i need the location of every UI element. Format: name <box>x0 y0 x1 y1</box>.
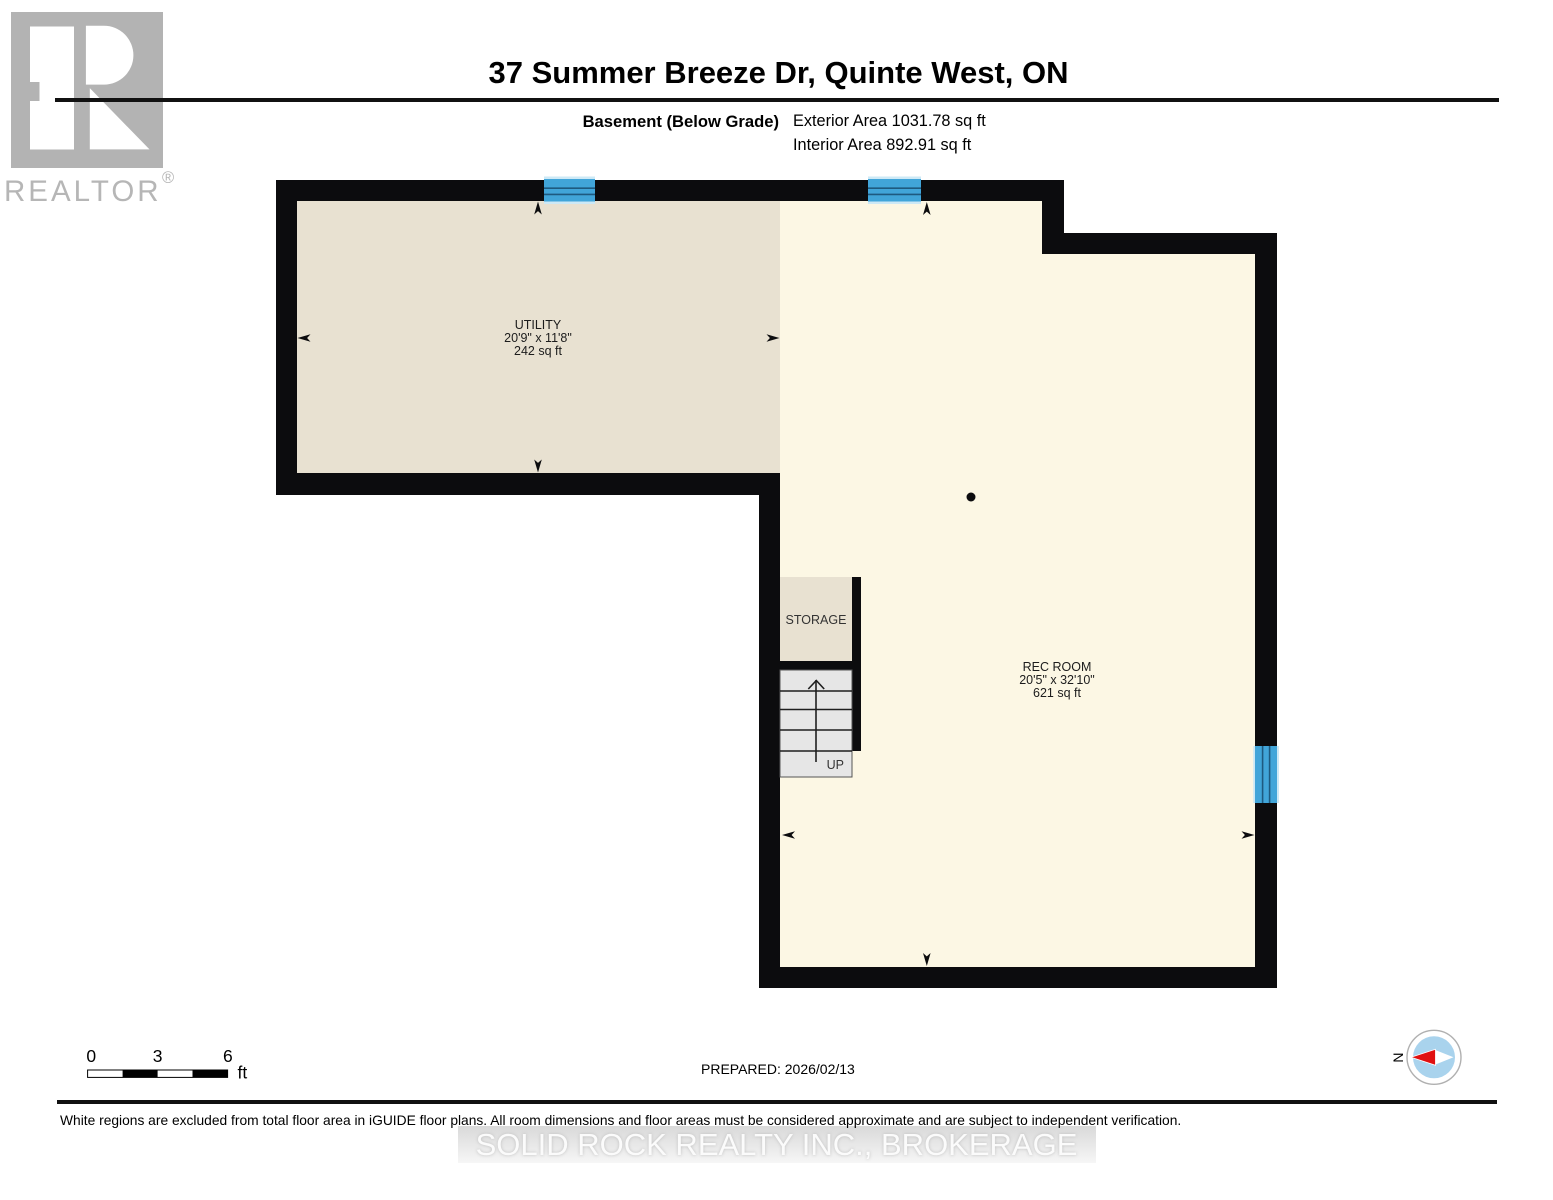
svg-text:STORAGE: STORAGE <box>786 613 847 627</box>
svg-text:20'5" x 32'10": 20'5" x 32'10" <box>1019 673 1095 687</box>
svg-text:N: N <box>1390 1052 1406 1062</box>
svg-text:UTILITY: UTILITY <box>515 318 562 332</box>
svg-text:ft: ft <box>238 1063 248 1083</box>
svg-text:6: 6 <box>223 1046 233 1066</box>
svg-text:242 sq ft: 242 sq ft <box>514 344 562 358</box>
svg-text:621 sq ft: 621 sq ft <box>1033 686 1081 700</box>
svg-text:REC ROOM: REC ROOM <box>1023 660 1092 674</box>
svg-text:UP: UP <box>827 758 844 772</box>
svg-text:3: 3 <box>153 1046 163 1066</box>
svg-text:20'9" x 11'8": 20'9" x 11'8" <box>504 331 572 345</box>
svg-text:0: 0 <box>86 1046 96 1066</box>
